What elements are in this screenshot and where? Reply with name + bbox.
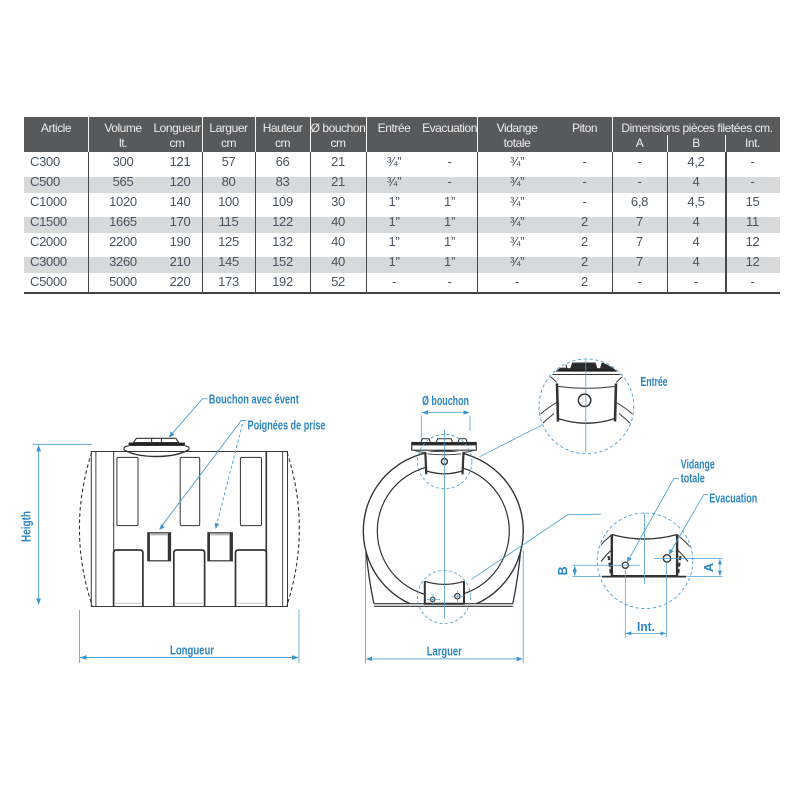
svg-text:Vidange: Vidange: [681, 458, 715, 472]
svg-text:Int.: Int.: [637, 620, 655, 634]
svg-text:A: A: [702, 563, 716, 572]
svg-text:Evacuation: Evacuation: [709, 492, 757, 506]
svg-text:Ø bouchon: Ø bouchon: [422, 394, 469, 408]
svg-text:Entrée: Entrée: [641, 375, 668, 389]
svg-text:totale: totale: [681, 472, 705, 486]
svg-text:Longueur: Longueur: [170, 644, 214, 658]
svg-text:B: B: [556, 566, 570, 575]
svg-text:Poignées de prise: Poignées de prise: [248, 418, 326, 432]
svg-text:Heigth: Heigth: [20, 511, 34, 542]
svg-text:Bouchon avec évent: Bouchon avec évent: [209, 392, 300, 406]
svg-text:Larguer: Larguer: [427, 645, 462, 659]
